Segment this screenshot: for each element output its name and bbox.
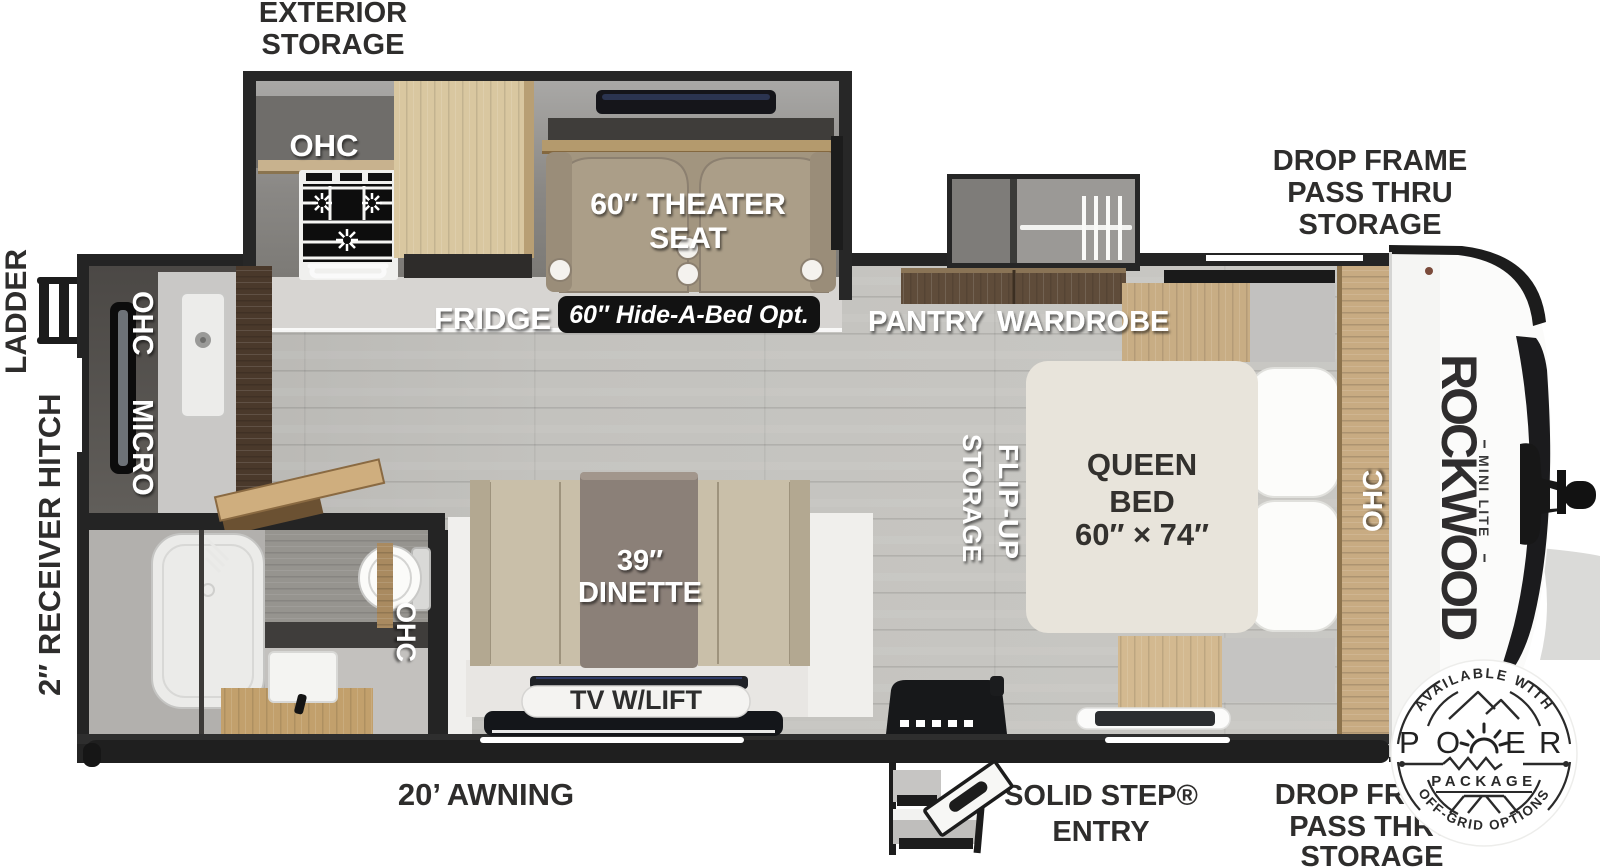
svg-text:OHC: OHC bbox=[391, 602, 421, 662]
svg-text:ENTRY: ENTRY bbox=[1052, 816, 1149, 848]
svg-text:TV W/LIFT: TV W/LIFT bbox=[570, 685, 702, 715]
svg-text:O: O bbox=[1436, 725, 1460, 760]
svg-text:MINI LITE: MINI LITE bbox=[1476, 455, 1492, 539]
svg-text:QUEEN: QUEEN bbox=[1087, 447, 1197, 482]
svg-text:P: P bbox=[1399, 725, 1420, 760]
svg-text:FRIDGE: FRIDGE bbox=[434, 301, 551, 336]
svg-text:DINETTE: DINETTE bbox=[578, 577, 702, 609]
svg-text:EXTERIOR: EXTERIOR bbox=[259, 0, 407, 29]
svg-text:STORAGE: STORAGE bbox=[957, 434, 987, 562]
svg-text:60″ Hide-A-Bed Opt.: 60″ Hide-A-Bed Opt. bbox=[569, 301, 809, 329]
svg-text:R: R bbox=[1539, 725, 1561, 760]
svg-text:MICRO: MICRO bbox=[126, 399, 158, 496]
svg-text:60″ × 74″: 60″ × 74″ bbox=[1075, 517, 1209, 552]
svg-text:BED: BED bbox=[1109, 484, 1174, 519]
svg-text:FLIP-UP: FLIP-UP bbox=[993, 444, 1024, 560]
svg-text:OHC: OHC bbox=[1357, 470, 1388, 532]
svg-text:LADDER: LADDER bbox=[0, 249, 33, 374]
svg-text:OHC: OHC bbox=[126, 291, 158, 356]
svg-text:DROP FRAME: DROP FRAME bbox=[1273, 145, 1467, 177]
svg-text:WARDROBE: WARDROBE bbox=[997, 306, 1169, 338]
svg-text:20’ AWNING: 20’ AWNING bbox=[398, 777, 574, 812]
svg-text:PASS THRU: PASS THRU bbox=[1287, 177, 1452, 209]
svg-text:SOLID STEP®: SOLID STEP® bbox=[1004, 780, 1198, 812]
svg-text:STORAGE: STORAGE bbox=[1301, 841, 1444, 868]
svg-text:60″ THEATER: 60″ THEATER bbox=[590, 188, 786, 221]
svg-text:STORAGE: STORAGE bbox=[1299, 209, 1442, 241]
svg-text:PACKAGE: PACKAGE bbox=[1431, 773, 1536, 790]
svg-text:PANTRY: PANTRY bbox=[868, 306, 984, 338]
svg-text:39″: 39″ bbox=[617, 545, 663, 577]
svg-text:OHC: OHC bbox=[290, 128, 359, 163]
svg-text:SEAT: SEAT bbox=[649, 222, 727, 255]
svg-text:2″ RECEIVER HITCH: 2″ RECEIVER HITCH bbox=[32, 393, 67, 696]
svg-text:STORAGE: STORAGE bbox=[262, 29, 405, 61]
